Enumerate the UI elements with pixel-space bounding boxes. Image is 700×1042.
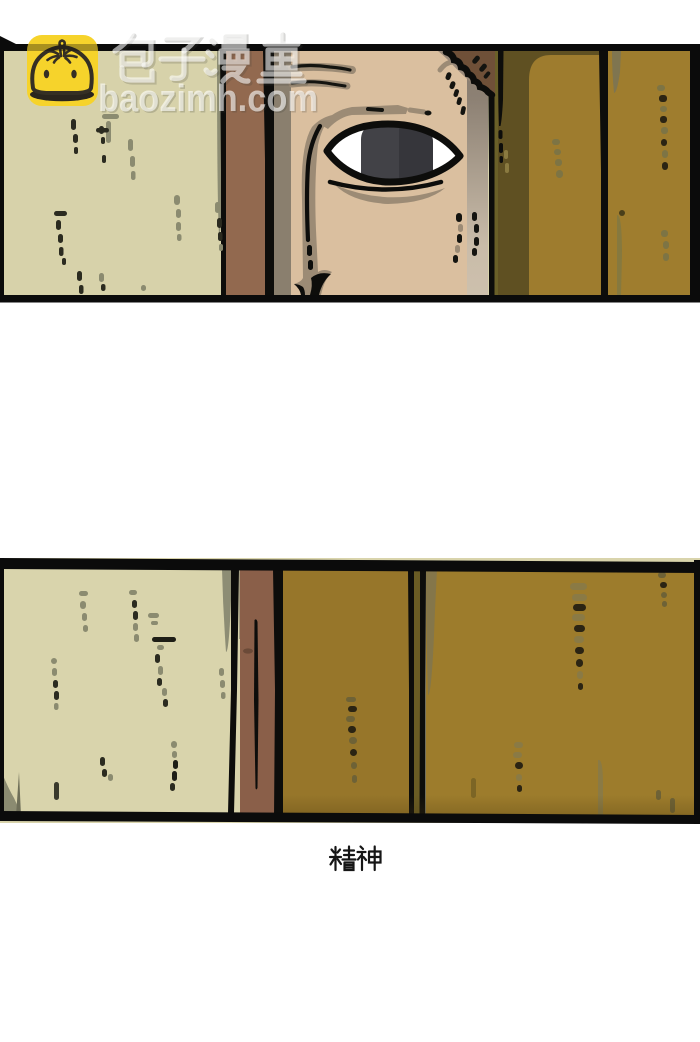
- svg-text:baozimh.com: baozimh.com: [98, 78, 318, 120]
